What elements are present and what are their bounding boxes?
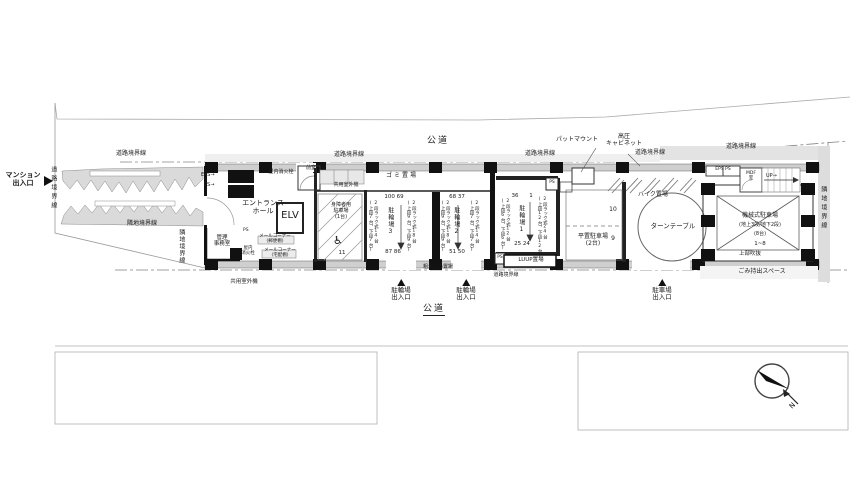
- eps-ps-label: EPS PS: [715, 167, 730, 172]
- machine-parking-levels: (地上3段/地下2段): [739, 223, 781, 229]
- office-label: 管理 事務室: [214, 235, 231, 248]
- bike3-right-rack-sub: (上段9台、下段9台): [406, 201, 411, 253]
- bicycle-entrance-arrow-icon: [397, 279, 405, 286]
- up-stairs-label: UP→: [766, 174, 777, 180]
- machine-parking-count: (8台): [754, 232, 766, 238]
- road-boundary-label-vertical: 道路境界線: [49, 166, 56, 211]
- rack-number-arrows: [398, 202, 533, 249]
- disabled-parking-label: 身障者用 駐車場 (1台): [331, 203, 351, 220]
- anteroom-label: 前室: [306, 166, 316, 172]
- wheelchair-icon: ♿: [333, 234, 343, 247]
- bike3-left-rack-sub: (上段7台、下段7台): [368, 201, 373, 253]
- road-boundary-label: 道路境界線: [334, 152, 364, 159]
- bike2-left-rack-sub: (上段9台、下段9台): [440, 201, 445, 253]
- disabled-line3: (1台): [331, 215, 351, 221]
- hv-cabinet-line2: キャビネット: [606, 141, 642, 148]
- bicycle-entrance-line2: 出入口: [456, 294, 476, 301]
- turntable-label: ターンテーブル: [651, 223, 696, 230]
- ps-label: PS: [497, 255, 503, 260]
- entrance-hall-label: エントランス ホール: [242, 199, 284, 215]
- mail-corner-parcel-label: メールコーナー (宅配棚): [264, 248, 295, 258]
- bicycle-entrance-label: 駐輪場 出入口: [456, 279, 476, 302]
- mansion-entrance-line2: 出入口: [2, 179, 44, 187]
- road-boundary-label: 道路境界線: [726, 144, 756, 151]
- road-bottom-label: 公道: [423, 304, 445, 316]
- bike3-right-rack: 2段ラック式18台: [411, 201, 416, 253]
- siteplan-page: ♿: [0, 0, 850, 500]
- flat-parking-num10: 10: [609, 207, 617, 214]
- ps-label: PS→: [204, 183, 214, 189]
- mdf-room-label: MDF 室: [746, 171, 756, 181]
- bike1-num-1: 1: [529, 193, 533, 199]
- bike2-top-numbers: 68 37: [449, 194, 465, 200]
- bike3-right-rack-note: 2段ラック式18台 (上段9台、下段9台): [406, 201, 416, 253]
- bike1-left-rack-note: 2段ラック式12台 (上段6台、下段6台): [500, 199, 510, 251]
- garbage-room-label: ゴミ置場: [386, 173, 418, 180]
- bike2-right-rack-sub: (上段7台、下段7台): [469, 201, 474, 253]
- hydrant2-line2: 消火栓: [241, 251, 255, 256]
- road-top-label: 公道: [427, 136, 449, 146]
- compass-icon: N: [755, 364, 798, 410]
- machine-parking-range: 1~8: [754, 241, 766, 247]
- bike3-name: 駐輪場3: [386, 207, 393, 236]
- bike1-right-rack-note: 2段ラック式24台 (上段12台、下段12台): [537, 197, 547, 259]
- hv-cabinet-label: 高圧 キャビネット: [606, 134, 642, 148]
- indoor-hydrant2-label: 屋内 消火栓: [241, 246, 255, 256]
- mail-parcel-line2: (宅配棚): [264, 253, 295, 258]
- flat-parking-line2: (2台): [578, 241, 608, 248]
- motorcycle-area-label: バイク置場: [638, 192, 668, 199]
- elevator-label: ELV: [281, 210, 299, 222]
- garbage-carryout-label: ごみ持出スペース: [738, 269, 785, 276]
- car-entrance-arrow-icon: [658, 279, 666, 286]
- bike2-left-rack: 2段ラック式18台: [445, 201, 450, 253]
- bike1-bottom-numbers: 25 24: [514, 241, 530, 247]
- road-boundary-label: 道路境界線: [635, 150, 665, 157]
- landscaping-trees: [61, 167, 203, 226]
- car-entrance-label: 駐車場 出入口: [652, 279, 672, 302]
- bike3-left-rack: 2段ラック式14台: [373, 201, 378, 253]
- bicycle-entrance-label: 駐輪場 出入口: [391, 279, 411, 302]
- bike2-left-rack-note: 2段ラック式18台 (上段9台、下段9台): [440, 201, 450, 253]
- pad-mount-label: パットマウント: [556, 137, 598, 144]
- bike3-bottom-numbers: 87 86: [385, 249, 401, 255]
- bike2-right-rack: 2段ラック式14台: [474, 201, 479, 253]
- machine-parking-title: 機械式駐車場: [742, 213, 778, 220]
- bike1-name: 駐輪場1: [517, 205, 524, 234]
- machine-parking-void: 上部吹抜: [739, 251, 761, 257]
- flat-parking-label: 平置駐車場 (2台): [578, 234, 608, 248]
- neighbor-boundary-label-vertical: 隣地境界線: [177, 229, 184, 264]
- disabled-parking-number: 11: [339, 250, 346, 256]
- road-boundary-label: 道路境界線: [525, 151, 555, 158]
- bike3-left-rack-note: 2段ラック式14台 (上段7台、下段7台): [368, 201, 378, 253]
- eps-label: EPS→: [201, 173, 215, 179]
- bike1-left-rack-sub: (上段6台、下段6台): [500, 199, 505, 251]
- bike1-left-rack: 2段ラック式12台: [505, 199, 510, 251]
- mansion-entrance-label: マンション 出入口: [2, 171, 44, 187]
- entrance-hall-line1: エントランス: [242, 199, 284, 207]
- bike2-name: 駐輪場2: [452, 207, 459, 236]
- office-line2: 事務室: [214, 241, 231, 247]
- mdf-line2: 室: [746, 176, 756, 181]
- ps-label: PS: [549, 180, 555, 185]
- road-boundary-label: 道路境界線: [493, 273, 518, 279]
- entrance-hall-line2: ホール: [242, 207, 284, 215]
- outdoor-unit-label: 共用室外機: [333, 183, 358, 189]
- bike1-right-rack-sub: (上段12台、下段12台): [537, 197, 542, 259]
- luup-label: LUUP置場: [518, 257, 543, 263]
- bike2-right-rack-note: 2段ラック式14台 (上段7台、下段7台): [469, 201, 479, 253]
- siteplan-linework: ♿: [0, 0, 850, 500]
- bike3-top-numbers: 100 69: [384, 194, 403, 200]
- car-entrance-line2: 出入口: [652, 294, 672, 301]
- neighbor-boundary-label-vertical: 隣地境界線: [819, 186, 826, 231]
- mansion-entrance-line1: マンション: [2, 171, 44, 179]
- bicycle-entrance-line2: 出入口: [391, 294, 411, 301]
- bike1-num-36: 36: [512, 193, 519, 199]
- bike1-right-rack: 2段ラック式24台: [542, 197, 547, 259]
- flat-parking-num9: 9: [611, 236, 615, 243]
- outdoor-unit-bottom-label: 共用室外機: [230, 279, 258, 285]
- neighbor-boundary-label: 隣地境界線: [127, 221, 157, 228]
- bike2-bottom-numbers: 51 50: [449, 249, 465, 255]
- mail-corner-post-label: メールコーナー (郵便棚): [259, 234, 290, 244]
- bulky-garbage-label: 粗大ごみ置場: [423, 265, 453, 271]
- mail-post-line2: (郵便棚): [259, 239, 290, 244]
- ps-label: PS: [243, 228, 249, 233]
- indoor-hydrant-label: 屋内消火栓: [268, 170, 293, 176]
- bicycle-entrance-arrow-icon: [462, 279, 470, 286]
- road-boundary-label: 道路境界線: [116, 151, 146, 158]
